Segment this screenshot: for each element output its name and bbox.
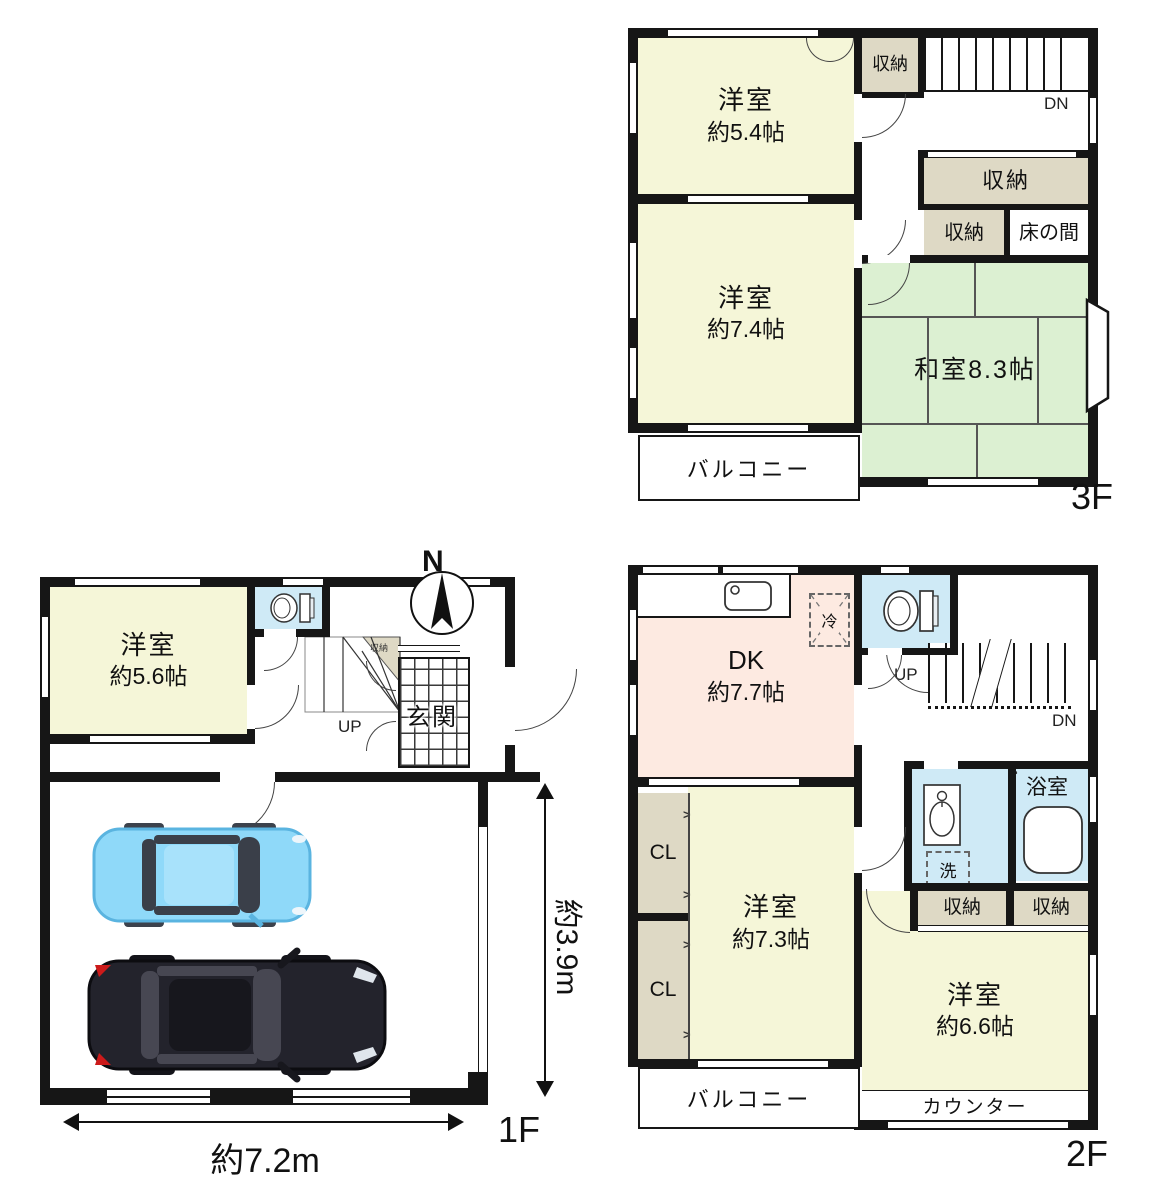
room-label: 和室8.3帖 <box>914 354 1036 387</box>
wall <box>918 38 924 98</box>
room-label: 洋室 <box>718 84 774 118</box>
window <box>1088 777 1098 822</box>
floor-label-3f: 3F <box>1053 476 1113 518</box>
closet-label: CL <box>650 839 677 866</box>
floor-label-2f: 2F <box>1038 1133 1108 1175</box>
door-arc <box>862 827 906 871</box>
garage-shutter <box>293 1088 410 1105</box>
room-size: 約7.7帖 <box>707 678 785 708</box>
tatami-line <box>974 263 976 316</box>
window <box>649 777 799 787</box>
kitchen-sink-icon <box>723 579 775 613</box>
genkan-label: 玄関 <box>406 697 458 732</box>
closet-label: 収納 <box>944 220 984 246</box>
window <box>628 685 638 735</box>
window <box>928 151 1076 158</box>
dim-arrow-up <box>536 783 554 799</box>
genkan-door-arc <box>366 721 396 751</box>
door-opening <box>868 255 910 263</box>
door-opening <box>264 629 296 637</box>
entrance-door-arc <box>515 669 577 731</box>
stair-storage-label: 収納 <box>370 641 388 654</box>
dim-arrow-down <box>536 1081 554 1097</box>
closet-door-line <box>688 793 690 1059</box>
closet-storage: 収納 <box>1014 891 1088 925</box>
entrance-opening <box>505 667 515 745</box>
car-black <box>85 953 389 1077</box>
dim-width-label: 約7.2m <box>195 1133 335 1182</box>
wall <box>1008 761 1016 891</box>
tatami-line <box>927 316 929 423</box>
sliding-door-track <box>918 925 1088 932</box>
window <box>75 577 200 587</box>
staircase-3f <box>924 38 1062 90</box>
door-opening <box>854 94 862 142</box>
closet-storage: 収納 <box>918 891 1006 925</box>
closet-label: 収納 <box>1032 896 1070 921</box>
room-western-7-4: 洋室 約7.4帖 <box>638 204 854 423</box>
door-opening <box>854 220 862 268</box>
room-western-5-6: 洋室 約5.6帖 <box>50 587 247 734</box>
balcony-2f: バルコニー <box>638 1067 860 1129</box>
refrigerator-label: 冷 <box>820 607 838 633</box>
toilet-icon <box>872 583 944 641</box>
room-size: 約5.6帖 <box>110 662 188 692</box>
closet-label: CL <box>650 976 677 1003</box>
balcony-label: バルコニー <box>687 452 812 484</box>
wall <box>468 1072 488 1088</box>
garage-shutter <box>107 1088 210 1105</box>
wall <box>904 761 912 891</box>
stairs-up-label: UP <box>338 717 362 737</box>
window <box>40 617 50 697</box>
dim-height-label: 約3.9m <box>548 887 592 1007</box>
window <box>668 28 818 38</box>
wash-basin-icon <box>922 783 962 847</box>
room-size: 約7.4帖 <box>707 315 785 345</box>
tatami-line <box>862 316 1088 318</box>
laundry-box: 洗 <box>926 851 970 887</box>
tatami-line <box>976 423 978 477</box>
closet-storage-wide: 収納 <box>924 158 1088 204</box>
wall <box>950 575 958 655</box>
door-opening <box>868 648 902 655</box>
tatami-line <box>1037 316 1039 423</box>
toilet-icon <box>262 590 318 626</box>
refrigerator-box: 冷 <box>809 593 850 647</box>
tatami-line <box>862 423 1088 425</box>
window <box>1088 955 1098 1015</box>
room-label: 洋室 <box>120 629 176 663</box>
wall <box>918 150 924 210</box>
bay-window <box>1084 298 1112 414</box>
car-blue <box>90 823 314 927</box>
closet-storage-small: 収納 <box>924 210 1004 255</box>
window <box>628 243 638 318</box>
window <box>398 645 460 652</box>
door-opening <box>854 827 862 873</box>
window <box>628 348 638 398</box>
stair-dotted-line <box>928 706 1071 709</box>
door-arc <box>862 94 906 138</box>
room-size: 約7.3帖 <box>732 925 810 955</box>
closet-cl-1: CL <box>638 793 688 913</box>
room-western-5-4: 洋室 約5.4帖 <box>638 38 854 194</box>
balcony-label: バルコニー <box>687 1082 812 1114</box>
plan-3f: 洋室 約5.4帖 洋室 約7.4帖 和室8.3帖 収納 収納 収納 床の間 <box>628 28 1114 514</box>
closet-cl-2: CL <box>638 921 688 1059</box>
wall <box>910 883 918 931</box>
stairs-down-label: DN <box>1044 94 1069 114</box>
bathroom-label: 浴室 <box>1026 771 1068 801</box>
door-opening <box>924 761 958 769</box>
window <box>723 565 798 575</box>
window <box>928 477 1038 487</box>
door-arc <box>255 685 299 729</box>
window <box>628 610 638 660</box>
window <box>888 1120 1068 1130</box>
wall <box>322 587 330 637</box>
window <box>688 194 808 204</box>
laundry-label: 洗 <box>940 857 957 882</box>
plan-1f: 洋室 約5.6帖 収納 UP 玄関 <box>40 577 600 1186</box>
tokonoma-alcove: 床の間 <box>1010 210 1088 255</box>
balcony-3f: バルコニー <box>638 435 860 501</box>
window <box>1088 660 1098 710</box>
room-western-7-3: 洋室 約7.3帖 <box>688 787 854 1059</box>
room-size: 約6.6帖 <box>936 1012 1014 1042</box>
counter-label: カウンター <box>922 1092 1027 1119</box>
closet-label: 収納 <box>872 53 908 76</box>
door-opening <box>854 685 862 745</box>
window <box>1088 98 1098 143</box>
dim-line-vertical <box>544 795 546 1083</box>
carport-open-side <box>478 827 488 1072</box>
wall <box>1088 565 1098 1130</box>
room-label: 洋室 <box>718 282 774 316</box>
stair-edge <box>924 90 1088 92</box>
wall <box>918 204 1088 210</box>
dim-line-horizontal <box>75 1121 455 1123</box>
room-size: 約5.4帖 <box>707 118 785 148</box>
floor-label-1f: 1F <box>498 1109 540 1151</box>
window <box>628 63 638 133</box>
dim-arrow-right <box>448 1113 464 1131</box>
door-arc <box>264 637 298 671</box>
window <box>688 423 808 433</box>
wall <box>478 782 488 827</box>
window <box>643 565 718 575</box>
wall <box>854 565 862 1067</box>
garage-door-opening <box>220 772 275 782</box>
room-label: 洋室 <box>947 979 1003 1013</box>
window <box>283 577 323 587</box>
wall <box>1006 891 1014 925</box>
closet-storage: 収納 <box>862 38 918 92</box>
tokonoma-label: 床の間 <box>1019 220 1079 246</box>
room-label: DK <box>728 644 764 678</box>
window <box>90 734 210 744</box>
stairs-down-label: DN <box>1052 711 1077 731</box>
dim-arrow-left <box>63 1113 79 1131</box>
plan-2f: DK 約7.7帖 洋室 約7.3帖 洋室 約6.6帖 冷 <box>628 565 1114 1180</box>
closet-label: 収納 <box>982 167 1030 196</box>
wall <box>40 772 540 782</box>
room-label: 洋室 <box>743 891 799 925</box>
wall <box>904 883 1098 891</box>
closet-label: 収納 <box>943 896 981 921</box>
compass-icon <box>408 569 476 637</box>
counter-strip: カウンター <box>862 1090 1088 1120</box>
bathtub-icon <box>1022 805 1084 875</box>
door-opening <box>247 685 255 729</box>
floorplan-canvas: 洋室 約5.4帖 洋室 約7.4帖 和室8.3帖 収納 収納 収納 床の間 <box>0 0 1149 1186</box>
wall <box>628 913 688 921</box>
window <box>881 565 909 575</box>
wall <box>1004 210 1010 255</box>
room-western-6-6: 洋室 約6.6帖 <box>862 931 1088 1090</box>
